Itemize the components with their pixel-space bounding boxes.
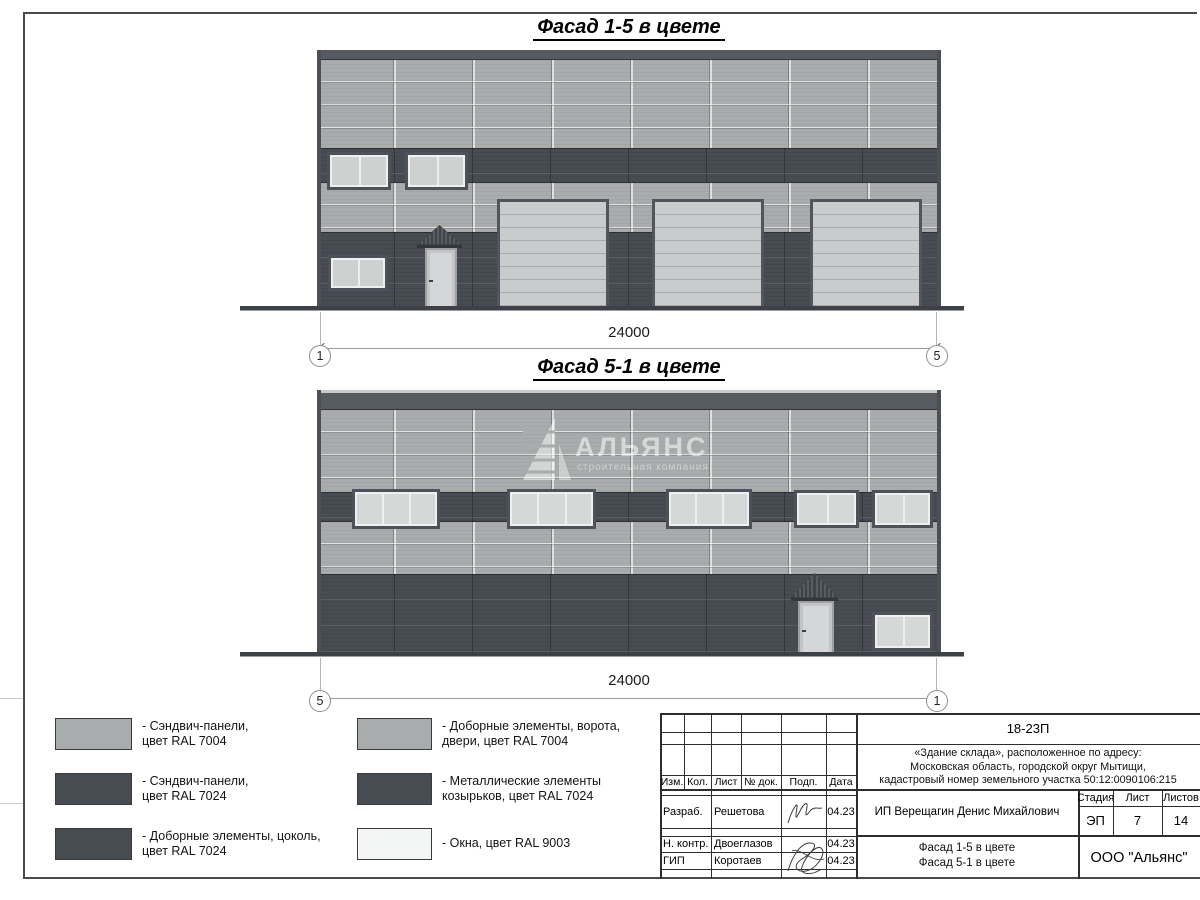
sheet-frame-bottom [23,877,1200,879]
window [666,489,752,529]
stamp-role: Разраб. [663,795,711,828]
stamp-border-line [660,732,856,733]
sectional-gate [497,199,609,308]
stamp-sheet-label: Лист [1113,789,1162,806]
corner-trim [317,390,321,656]
stamp-date: 04.23 [826,836,856,852]
window [405,152,468,190]
stamp-sheet-value: 7 [1113,806,1162,835]
stamp-border-line [660,744,1200,745]
stamp-border-line [660,828,856,829]
legend-label: - Окна, цвет RAL 9003 [442,836,570,851]
facade1-title: Фасад 1-5 в цвете [317,16,941,39]
sheet-frame-left [23,12,25,878]
legend-swatch-ral7024 [55,773,132,805]
alliance-logo-sail-icon [523,418,571,480]
window [507,489,596,529]
window [327,152,391,190]
ground-line [240,306,964,310]
dimension-line [320,698,937,699]
signature [782,837,830,877]
stamp-border-line [660,713,662,879]
facade2-title: Фасад 5-1 в цвете [317,356,941,379]
stamp-col-kol: Кол. [684,775,711,789]
window [872,612,933,651]
margin-divider-line [0,698,23,699]
facade2-elevation-drawing: АЛЬЯНС строительная компания [317,390,941,656]
door-canopy [791,573,838,601]
socle-zone [317,574,941,654]
dimension-value: 24000 [317,672,941,689]
corner-trim [937,50,941,308]
stamp-drawing-title: Фасад 1-5 в цвете Фасад 5-1 в цвете [856,841,1078,871]
legend-swatch-ral7024-socle [55,828,132,860]
stamp-role: ГИП [663,852,711,869]
axis-marker: 5 [309,690,331,712]
window [328,255,388,291]
stamp-company: ООО "Альянс" [1078,836,1200,879]
legend-label: - Сэндвич-панели, цвет RAL 7004 [142,719,248,749]
door-canopy [417,225,462,248]
window [872,490,933,528]
sandwich-panel-zone [317,522,941,574]
stamp-col-podp: Подп. [781,775,826,789]
legend-label: - Металлические элементы козырьков, цвет… [442,774,601,804]
watermark-subtitle: строительная компания [577,462,709,473]
stamp-stage-value: ЭП [1078,806,1113,835]
stamp-border-line [711,713,712,879]
stamp-col-list: Лист [711,775,741,789]
stamp-client: ИП Верещагин Денис Михайлович [856,789,1078,835]
stamp-col-izm: Изм. [660,775,684,789]
legend-swatch-ral7004 [55,718,132,750]
legend-swatch-ral9003 [357,828,432,860]
window [352,489,440,529]
stamp-name: Двоеглазов [714,836,782,852]
signature [784,797,826,827]
drawing-sheet: Фасад 1-5 в цвете [0,0,1200,900]
stamp-name: Коротаев [714,852,780,869]
legend-swatch-ral7024-canopy [357,773,432,805]
sandwich-panel-zone [317,60,941,148]
stamp-role: Н. контр. [663,836,713,852]
parapet-strip [317,393,941,410]
entrance-door [798,601,834,656]
sectional-gate [652,199,764,308]
stamp-col-data: Дата [826,775,856,789]
stamp-stage-label: Стадия [1078,789,1113,806]
legend-label: - Доборные элементы, цоколь, цвет RAL 70… [142,829,321,859]
stamp-sheets-label: Листов [1162,789,1200,806]
dimension-value: 24000 [317,324,941,341]
stamp-date: 04.23 [826,852,856,869]
legend-label: - Сэндвич-панели, цвет RAL 7024 [142,774,248,804]
watermark-company-name: АЛЬЯНС [575,432,709,463]
corner-trim [937,390,941,656]
stamp-project-code: 18-23П [856,713,1200,744]
ground-line [240,652,964,656]
stamp-date: 04.23 [826,795,856,828]
entrance-door [425,248,457,308]
window [794,490,859,528]
sheet-frame-top [23,12,1197,14]
parapet-strip [317,50,941,60]
facade1-elevation-drawing [317,50,941,308]
sectional-gate [810,199,922,308]
dimension-line [320,348,937,349]
margin-divider-line [0,803,23,804]
corner-trim [317,50,321,308]
legend-label: - Доборные элементы, ворота, двери, цвет… [442,719,620,749]
stamp-sheets-value: 14 [1162,806,1200,835]
stamp-col-doc: № док. [741,775,781,789]
axis-marker: 1 [926,690,948,712]
stamp-name: Решетова [714,795,780,828]
stamp-address: «Здание склада», расположенное по адресу… [858,747,1198,788]
legend-swatch-ral7004-doors [357,718,432,750]
